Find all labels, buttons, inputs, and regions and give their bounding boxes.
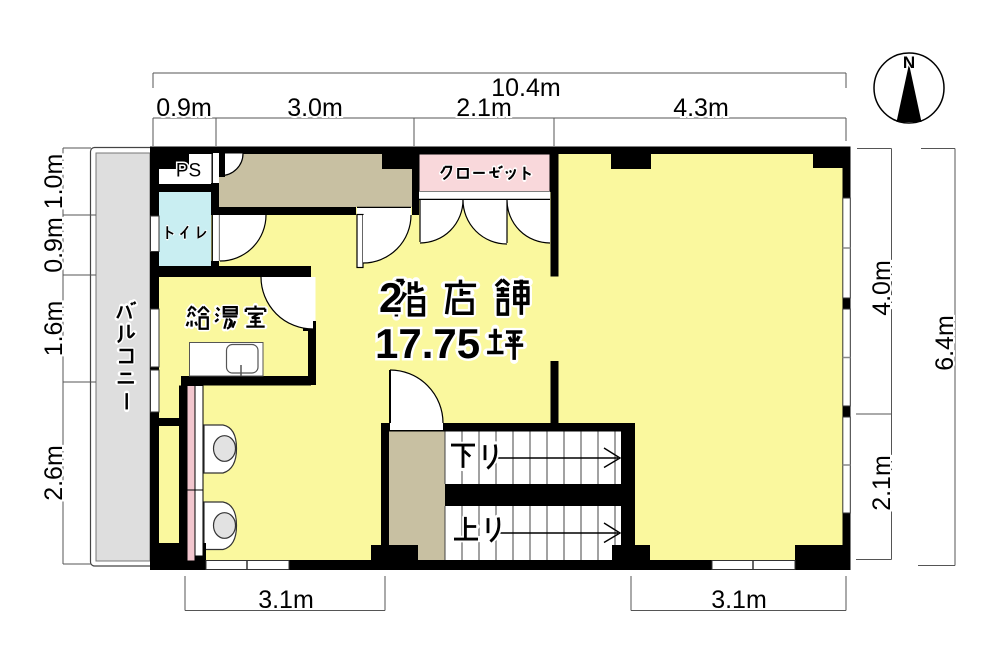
svg-text:2.6m: 2.6m	[40, 445, 68, 501]
svg-text:PS: PS	[176, 161, 201, 182]
svg-text:4.0m: 4.0m	[868, 260, 896, 316]
svg-text:1.0m: 1.0m	[40, 154, 68, 210]
svg-text:3.1m: 3.1m	[711, 586, 767, 614]
svg-text:6.4m: 6.4m	[931, 315, 959, 371]
svg-text:3.0m: 3.0m	[287, 94, 343, 122]
svg-text:2.1m: 2.1m	[868, 455, 896, 511]
svg-text:0.9m: 0.9m	[156, 94, 212, 122]
svg-text:3.1m: 3.1m	[258, 586, 314, 614]
svg-text:4.3m: 4.3m	[673, 94, 729, 122]
svg-text:N: N	[903, 53, 915, 72]
svg-text:2: 2	[379, 274, 402, 321]
svg-text:1.6m: 1.6m	[40, 301, 68, 357]
svg-text:2.1m: 2.1m	[456, 94, 512, 122]
svg-text:0.9m: 0.9m	[40, 217, 68, 273]
svg-text:17.75: 17.75	[375, 320, 480, 367]
